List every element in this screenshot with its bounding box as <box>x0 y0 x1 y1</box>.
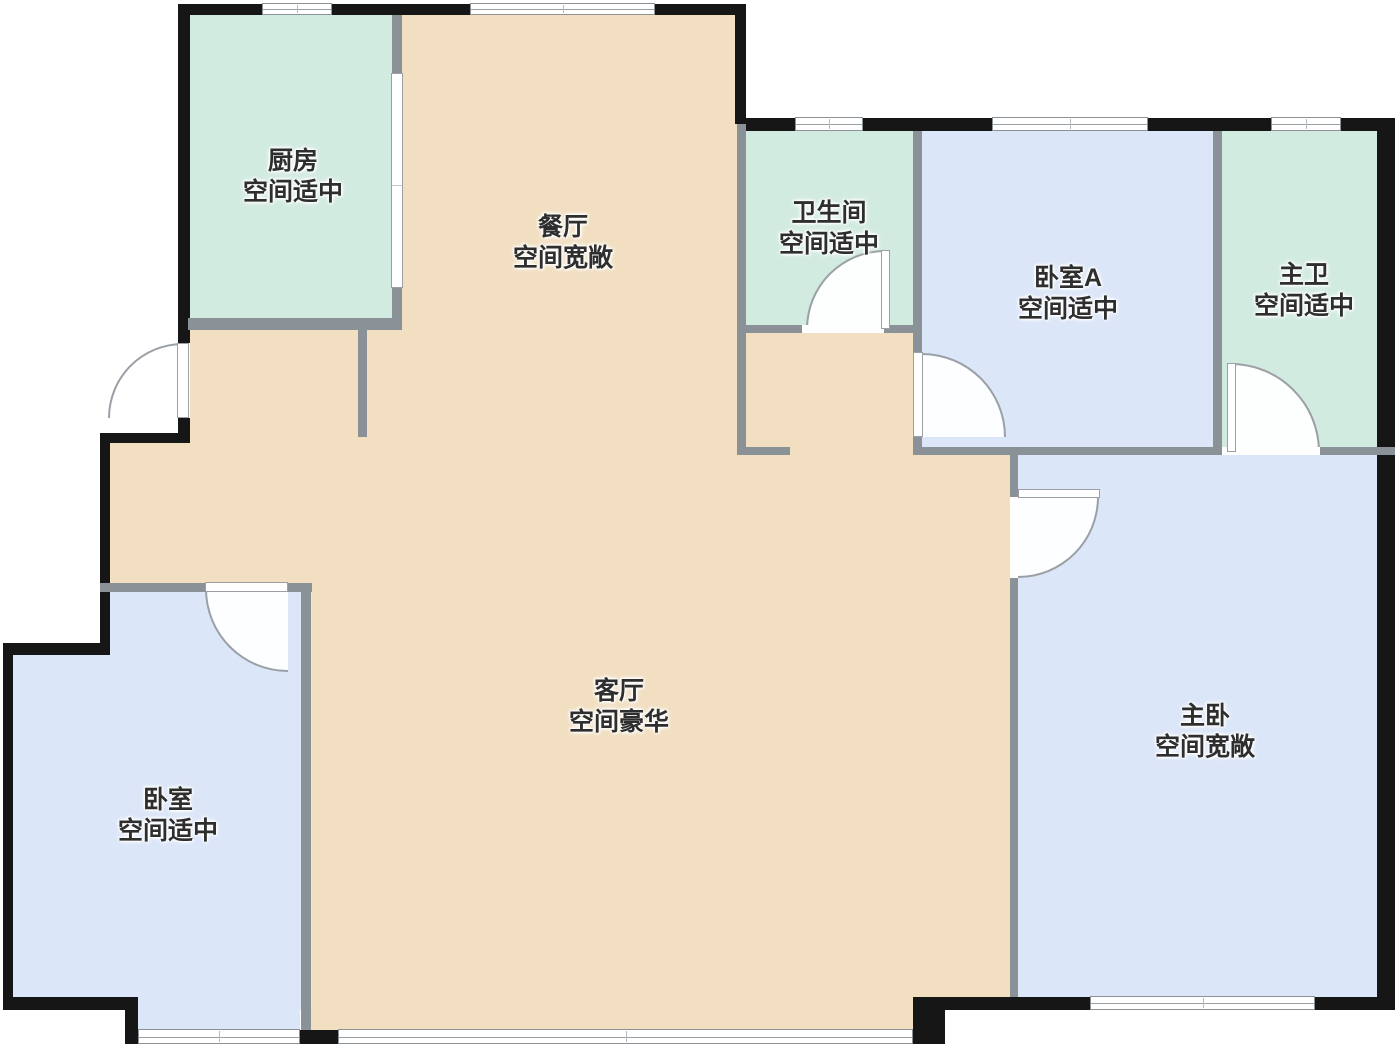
room-label-living: 客厅 空间豪华 <box>569 676 669 738</box>
window-living-balcony <box>338 1029 913 1044</box>
wall-left-middle <box>100 443 110 655</box>
room-label-master-bedroom: 主卧 空间宽敞 <box>1155 701 1255 763</box>
wall-master-bath-left <box>1213 131 1222 455</box>
room-name: 卫生间 <box>779 198 879 229</box>
wall-left-step2 <box>3 643 110 655</box>
wall-bedroom-a-left-upper <box>913 131 922 352</box>
wall-corridor-stub <box>737 447 790 455</box>
wall-right <box>1377 131 1395 1010</box>
wall-bay-step <box>125 997 138 1044</box>
wall-left-step1 <box>100 433 190 443</box>
room-size-note: 空间宽敞 <box>513 243 613 274</box>
wall-bedroom-bottom <box>3 997 135 1010</box>
wall-entry-stub <box>358 330 367 437</box>
window-bedroom-a <box>992 117 1148 131</box>
room-name: 主卫 <box>1254 260 1354 291</box>
room-label-master-bath: 主卫 空间适中 <box>1254 260 1354 322</box>
room-size-note: 空间豪华 <box>569 707 669 738</box>
wall-notch-step <box>735 4 746 124</box>
wall-bathroom-bottom-west <box>746 325 802 333</box>
room-label-bathroom: 卫生间 空间适中 <box>779 198 879 260</box>
entry-door-arc <box>108 343 183 418</box>
wall-bedroom-right <box>301 592 311 1030</box>
wall-bay-corner <box>300 1030 338 1044</box>
wall-left-upper <box>178 15 190 343</box>
entry-floor-upper <box>190 330 402 443</box>
wall-master-bottom-east <box>1315 997 1395 1010</box>
bedroom-a-door-leaf <box>913 352 923 437</box>
room-label-kitchen: 厨房 空间适中 <box>243 146 343 208</box>
room-name: 客厅 <box>569 676 669 707</box>
master-bedroom-door-leaf <box>1018 489 1100 498</box>
window-master-bedroom <box>1090 996 1315 1010</box>
wall-corridor-left <box>737 124 746 455</box>
room-name: 卧室A <box>1018 263 1118 294</box>
room-size-note: 空间适中 <box>1254 291 1354 322</box>
wall-bedroom-top-west <box>100 583 205 592</box>
room-size-note: 空间适中 <box>118 816 218 847</box>
room-size-note: 空间适中 <box>779 229 879 260</box>
entry-door-leaf <box>177 343 189 418</box>
room-label-bedroom-a: 卧室A 空间适中 <box>1018 263 1118 325</box>
room-label-bedroom: 卧室 空间适中 <box>118 785 218 847</box>
window-bedroom-bay <box>138 1029 300 1044</box>
room-name: 卧室 <box>118 785 218 816</box>
wall-master-left-upper <box>1010 447 1018 497</box>
room-size-note: 空间适中 <box>1018 294 1118 325</box>
bathroom-door-threshold <box>802 325 884 333</box>
room-size-note: 空间适中 <box>243 177 343 208</box>
room-name: 餐厅 <box>513 212 613 243</box>
wall-kitchen-bottom <box>188 318 402 330</box>
master-bath-door-threshold <box>1222 447 1320 455</box>
bedroom-door-leaf <box>205 582 288 592</box>
room-name: 厨房 <box>243 146 343 177</box>
wall-kitchen-right-upper <box>392 15 402 73</box>
window-bathroom <box>795 117 863 131</box>
wall-master-bottom-west <box>933 997 1090 1010</box>
corridor-floor <box>743 333 915 455</box>
window-dining <box>470 3 655 15</box>
wall-bedroom-top-east <box>288 583 312 592</box>
wall-left-lower <box>3 655 13 1010</box>
room-name: 主卧 <box>1155 701 1255 732</box>
wall-master-bath-bottom <box>1320 447 1395 455</box>
bathroom-door-leaf <box>881 250 890 329</box>
wall-bedroom-a-bottom <box>913 447 1221 455</box>
master-bath-door-leaf <box>1227 363 1236 452</box>
kitchen-sliding-door <box>391 73 403 288</box>
floor-plan: 厨房 空间适中 餐厅 空间宽敞 卫生间 空间适中 卧室A 空间适中 主卫 空间适… <box>0 0 1400 1044</box>
window-kitchen <box>262 3 332 15</box>
living-floor-east <box>913 443 1010 997</box>
room-size-note: 空间宽敞 <box>1155 732 1255 763</box>
window-master-bath <box>1271 117 1341 131</box>
master-door-threshold <box>1010 497 1018 578</box>
room-label-dining: 餐厅 空间宽敞 <box>513 212 613 274</box>
wall-master-left-lower <box>1010 578 1018 997</box>
